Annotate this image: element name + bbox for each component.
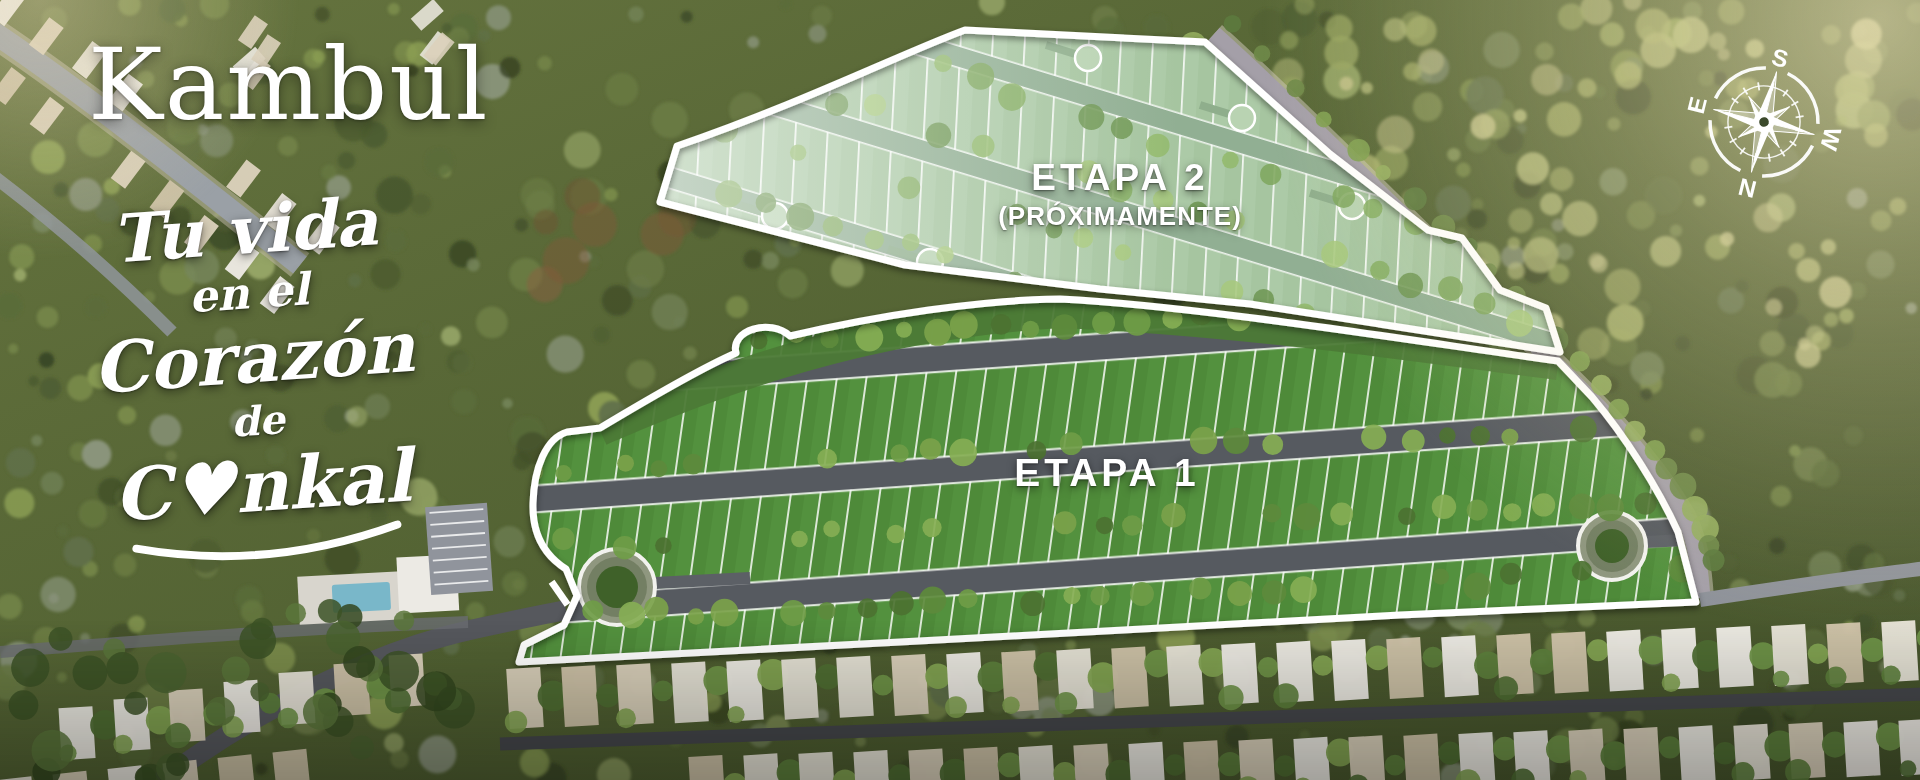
brand-tagline: Tu vida en el Corazón de C♥nkal xyxy=(77,181,433,581)
brand-logo: Kambul xyxy=(88,30,488,140)
bottom-vignette xyxy=(0,620,1920,780)
hero-masterplan: S E W N Kambul Tu vida en el Corazón de … xyxy=(0,0,1920,780)
etapa-2-label[interactable]: ETAPA 2 (PRÓXIMAMENTE) xyxy=(945,158,1295,231)
etapa-2-title: ETAPA 2 xyxy=(945,158,1295,198)
etapa-1-title: ETAPA 1 xyxy=(932,453,1282,493)
etapa-2-status: (PRÓXIMAMENTE) xyxy=(945,201,1295,231)
etapa-1-label[interactable]: ETAPA 1 xyxy=(932,453,1282,493)
